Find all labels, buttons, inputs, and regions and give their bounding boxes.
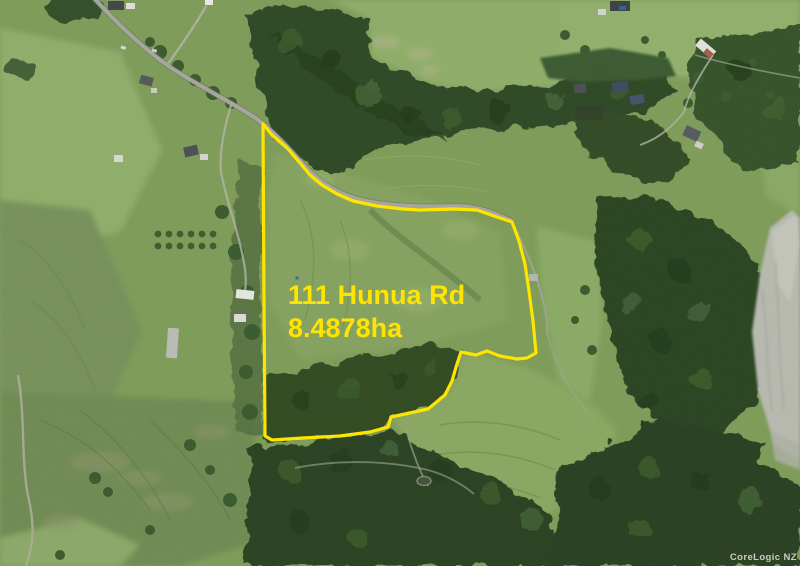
property-address-label: 111 Hunua Rd	[288, 280, 465, 310]
aerial-map-view: 111 Hunua Rd 8.4878ha CoreLogic NZ	[0, 0, 800, 566]
corelogic-watermark: CoreLogic NZ	[730, 552, 797, 563]
property-area-label: 8.4878ha	[288, 313, 403, 343]
aerial-photo: 111 Hunua Rd 8.4878ha CoreLogic NZ	[0, 0, 800, 566]
